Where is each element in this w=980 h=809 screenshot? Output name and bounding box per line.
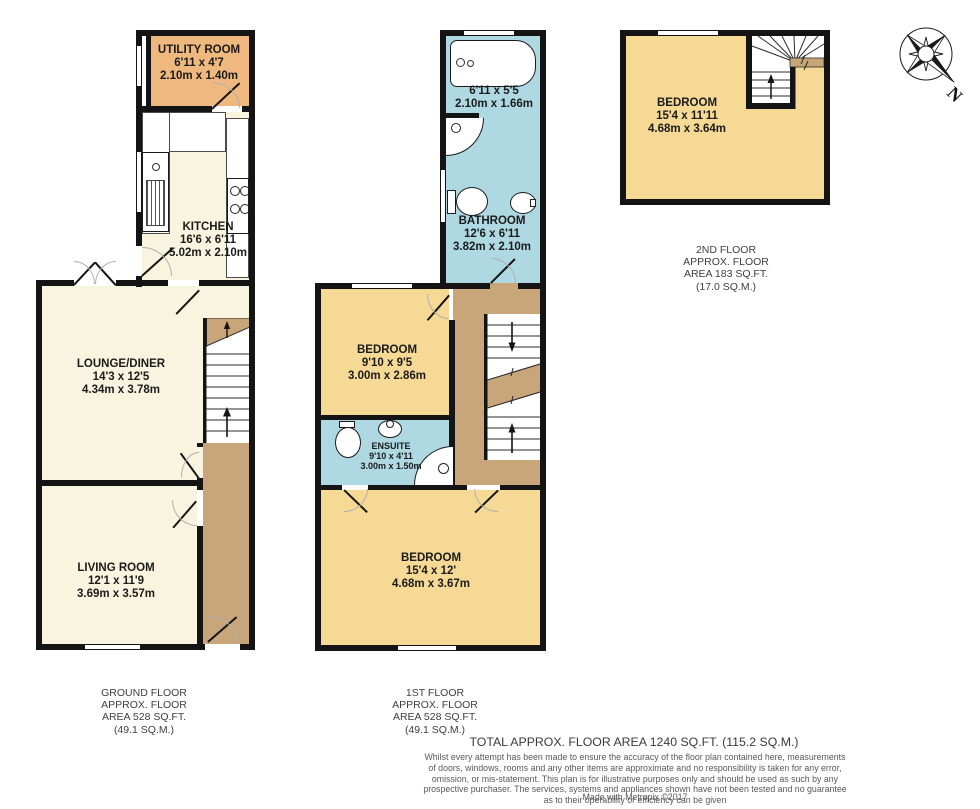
room-dims-imperial: 15'4 x 11'11 <box>607 110 767 123</box>
wall <box>824 30 830 205</box>
compass-n-label: N <box>943 83 966 104</box>
wall <box>620 199 830 205</box>
second-floor-caption: 2ND FLOOR APPROX. FLOOR AREA 183 SQ.FT. … <box>646 244 806 293</box>
wall <box>620 30 830 36</box>
credit-text: Made with Metropix ©2017 <box>421 792 849 803</box>
second-floor-plan: BEDROOM 15'4 x 11'11 4.68m x 3.64m 2ND F… <box>0 0 980 809</box>
bedroom-top-label: BEDROOM 15'4 x 11'11 4.68m x 3.64m <box>607 97 767 136</box>
window <box>658 30 718 36</box>
total-floor-area: TOTAL APPROX. FLOOR AREA 1240 SQ.FT. (11… <box>384 735 884 749</box>
compass-north-icon: N <box>890 14 970 104</box>
room-dims-metric: 4.68m x 3.64m <box>607 123 767 136</box>
floorplan-canvas: UTILITY ROOM 6'11 x 4'7 2.10m x 1.40m KI… <box>0 0 980 809</box>
room-name: BEDROOM <box>607 97 767 110</box>
